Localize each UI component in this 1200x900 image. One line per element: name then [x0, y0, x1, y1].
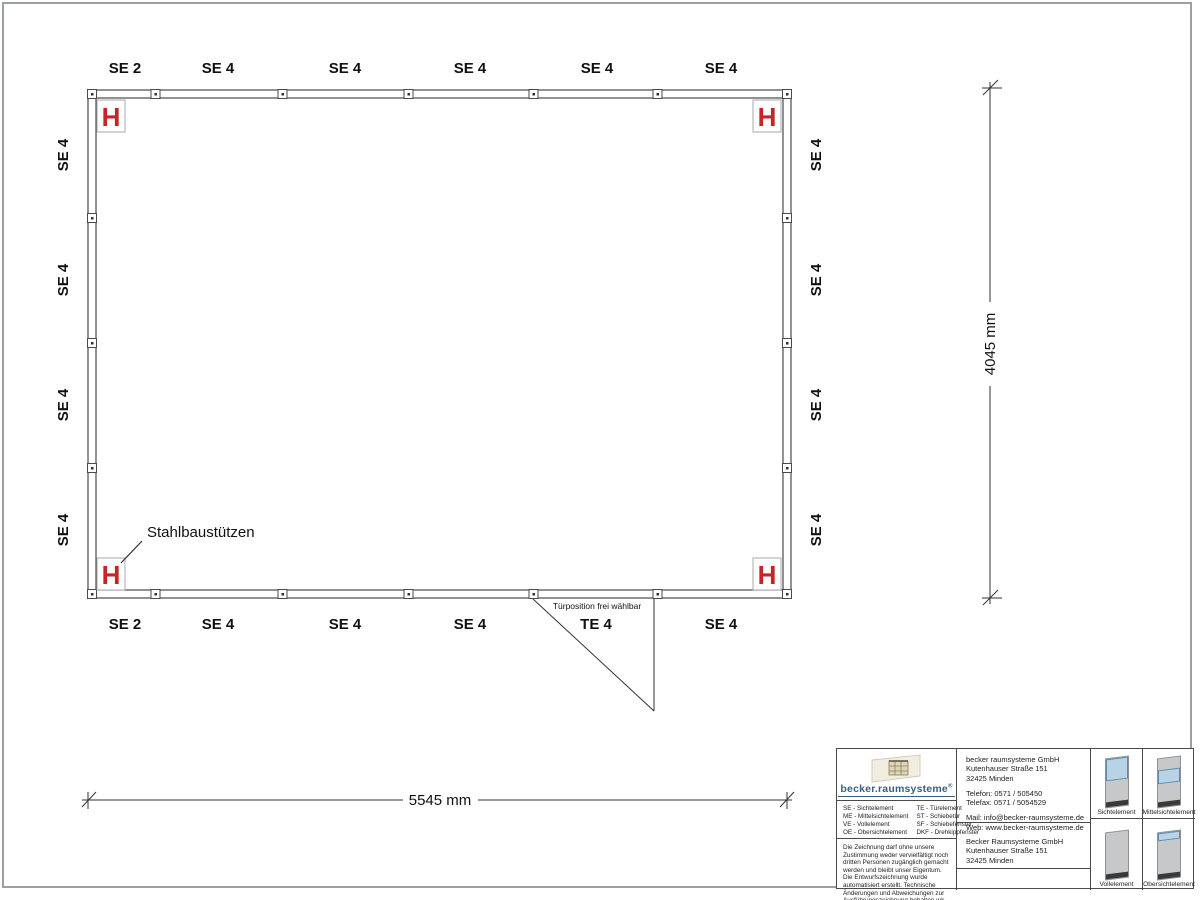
annotation-leader-line: [121, 541, 142, 563]
legend-entry: ME - Mittelsichtelement: [843, 813, 908, 821]
legend-entry: OE - Obersichtelement: [843, 829, 908, 837]
wall-top: [88, 90, 791, 98]
contact-street: Kutenhauser Straße 151: [966, 764, 1090, 773]
element-label-top: SE 2: [109, 60, 142, 77]
wall-connectors-vertical: [88, 214, 792, 473]
address-street: Kutenhauser Straße 151: [966, 846, 1090, 855]
thumbnail-vollelement: Vollelement: [1091, 819, 1143, 890]
element-label-top: SE 4: [202, 60, 235, 77]
thumbnail-sichtelement: Sichtelement: [1091, 749, 1143, 819]
element-label-bottom: SE 4: [329, 616, 362, 633]
element-thumbnails: Sichtelement Mittelsichtelement Vollelem…: [1091, 749, 1195, 890]
disclaimer: Die Zeichnung darf ohne unsere Zustimmun…: [837, 839, 957, 890]
thumbnail-obersichtelement: Obersichtelement: [1143, 819, 1195, 890]
legend-entry: SE - Sichtelement: [843, 805, 908, 813]
address-city: 32425 Minden: [966, 856, 1090, 865]
element-label-left: SE 4: [55, 138, 72, 171]
element-label-right: SE 4: [808, 138, 825, 171]
company-address: Becker Raumsysteme GmbH Kutenhauser Stra…: [957, 823, 1091, 869]
element-label-bottom: TE 4: [580, 616, 612, 633]
wall-corners: [88, 90, 792, 599]
title-block: becker.raumsysteme® SE - Sichtelement ME…: [836, 748, 1194, 889]
contact-fax: Telefax: 0571 / 5054529: [966, 798, 1090, 807]
abbreviation-legend: SE - Sichtelement ME - Mittelsichtelemen…: [837, 801, 957, 839]
floor-plan: H H H H SE 2 SE 4 SE 4 SE 4 SE 4 SE 4 SE…: [0, 0, 1050, 830]
logo-image: [870, 753, 924, 783]
element-label-top: SE 4: [454, 60, 487, 77]
obersichtelement-image: [1157, 830, 1181, 881]
element-label-left: SE 4: [55, 263, 72, 296]
thumbnail-label: Mittelsichtelement: [1143, 809, 1196, 816]
element-label-right: SE 4: [808, 513, 825, 546]
legend-entry: VE - Vollelement: [843, 821, 908, 829]
thumbnail-mittelsichtelement: Mittelsichtelement: [1143, 749, 1195, 819]
connector-dots: [91, 93, 789, 596]
dimension-width-label: 5545 mm: [409, 792, 472, 809]
element-label-top: SE 4: [329, 60, 362, 77]
element-label-top: SE 4: [705, 60, 738, 77]
element-label-bottom: SE 4: [454, 616, 487, 633]
address-company: Becker Raumsysteme GmbH: [966, 837, 1090, 846]
element-label-bottom: SE 4: [202, 616, 235, 633]
element-label-right: SE 4: [808, 263, 825, 296]
stahlbaustuetzen-label: Stahlbaustützen: [147, 524, 255, 541]
element-label-bottom: SE 4: [705, 616, 738, 633]
element-label-bottom: SE 2: [109, 616, 142, 633]
dimension-height-label: 4045 mm: [982, 313, 999, 376]
contact-city: 32425 Minden: [966, 774, 1090, 783]
wall-connectors-horizontal: [151, 90, 662, 599]
empty-cell: [957, 869, 1091, 890]
contact-company: becker raumsysteme GmbH: [966, 755, 1090, 764]
contact-mail: Mail: info@becker-raumsysteme.de: [966, 813, 1090, 822]
element-label-right: SE 4: [808, 388, 825, 421]
steel-column-symbol: H: [758, 102, 777, 132]
company-logo: becker.raumsysteme®: [837, 749, 957, 801]
thumbnail-label: Sichtelement: [1097, 809, 1135, 816]
steel-column-symbol: H: [758, 560, 777, 590]
steel-column-symbol: H: [102, 560, 121, 590]
thumbnail-label: Obersichtelement: [1143, 881, 1195, 888]
company-contact: becker raumsysteme GmbH Kutenhauser Stra…: [957, 749, 1091, 823]
element-label-left: SE 4: [55, 388, 72, 421]
mittelsichtelement-image: [1157, 756, 1181, 809]
element-label-left: SE 4: [55, 513, 72, 546]
element-label-top: SE 4: [581, 60, 614, 77]
drawing-sheet: H H H H SE 2 SE 4 SE 4 SE 4 SE 4 SE 4 SE…: [0, 0, 1200, 900]
thumbnail-label: Vollelement: [1099, 881, 1133, 888]
registered-mark: ®: [948, 783, 953, 789]
contact-phone: Telefon: 0571 / 505450: [966, 789, 1090, 798]
disclaimer-text: Die Zeichnung darf ohne unsere Zustimmun…: [843, 844, 951, 900]
sichtelement-image: [1105, 756, 1129, 809]
steel-column-symbol: H: [102, 102, 121, 132]
logo-wordmark: becker.raumsysteme®: [838, 783, 954, 797]
legend-column-1: SE - Sichtelement ME - Mittelsichtelemen…: [843, 805, 908, 838]
wall-bottom: [88, 590, 791, 598]
vollelement-image: [1105, 830, 1129, 881]
door-note: Türposition frei wählbar: [553, 601, 642, 611]
